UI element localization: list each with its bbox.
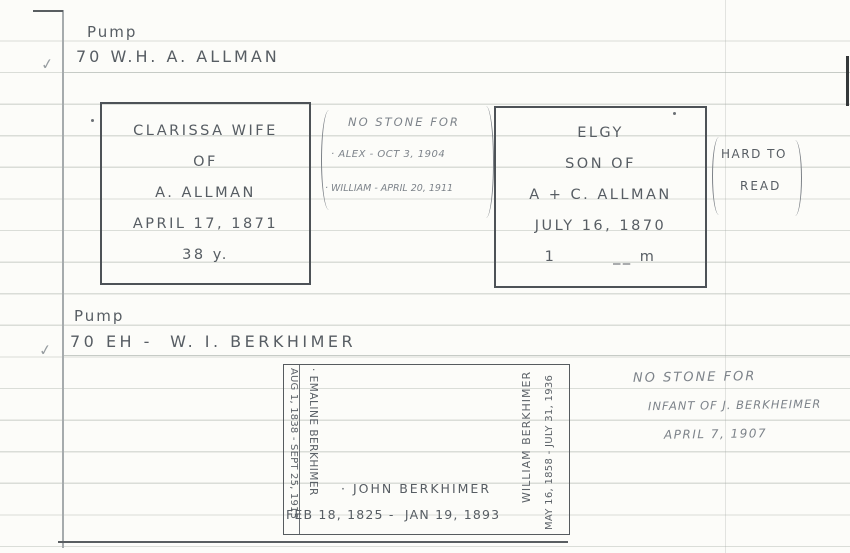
stone-side-text-william-name: WILLIAM BERKHIMER <box>521 371 532 503</box>
no-stone-note-1-line: NO STONE FOR <box>348 117 460 129</box>
stone-line: ELGY <box>577 118 624 149</box>
stone-line: 1 __ m <box>545 242 657 273</box>
pencil-dot <box>673 112 676 115</box>
stone-line: A + C. ALLMAN <box>529 180 671 211</box>
close-paren <box>478 106 494 218</box>
heading-allman: 70 W.H. A. ALLMAN <box>76 49 280 65</box>
stone-side-text-emaline-dates: AUG 1, 1838 - SEPT 25, 1915 <box>288 368 298 519</box>
stone-line: A. ALLMAN <box>155 178 256 209</box>
heading-pump-1: Pump <box>87 25 137 40</box>
paper-crease <box>725 0 726 553</box>
stone-bottom-text-john-dates: FEB 18, 1825 - JAN 19, 1893 <box>286 509 500 522</box>
margin-top-tick <box>33 10 63 12</box>
hard-to-read-line: HARD TO <box>721 148 787 160</box>
heading-pump-2: Pump <box>74 309 124 324</box>
checkmark-berkhimer: ✓ <box>38 342 55 359</box>
stone-line: OF <box>193 147 218 178</box>
stone-line: CLARISSA WIFE <box>133 116 278 147</box>
gravestone-sketch-clarissa: CLARISSA WIFE OF A. ALLMAN APRIL 17, 187… <box>100 102 311 285</box>
ruled-line-dark-2 <box>63 355 850 356</box>
stone-line: APRIL 17, 1871 <box>133 209 278 240</box>
checkmark-allman: ✓ <box>40 56 57 73</box>
no-stone-note-2-line: INFANT OF J. BERKHEIMER <box>648 399 821 413</box>
hard-to-read-line: READ <box>740 180 781 192</box>
bottom-sketch-line <box>58 541 568 543</box>
close-paren <box>788 140 802 216</box>
scanned-notebook-page: ✓ Pump 70 W.H. A. ALLMAN CLARISSA WIFE O… <box>0 0 850 553</box>
stone-bottom-text-john: · JOHN BERKHIMER <box>341 483 491 496</box>
no-stone-note-1-line: · ALEX - OCT 3, 1904 <box>331 150 445 160</box>
stone-side-text-emaline-name: · EMALINE BERKHIMER <box>308 368 319 496</box>
ruled-line-dark-1 <box>63 72 850 73</box>
stone-line: SON OF <box>565 149 636 180</box>
page-edge-mark <box>846 56 849 106</box>
open-paren <box>321 110 337 210</box>
no-stone-note-2-line: NO STONE FOR <box>633 370 756 385</box>
no-stone-note-1-line: · WILLIAM - APRIL 20, 1911 <box>325 184 453 194</box>
stone-line: 38 y. <box>182 240 229 271</box>
no-stone-note-2-line: APRIL 7, 1907 <box>664 427 767 440</box>
gravestone-sketch-elgy: ELGY SON OF A + C. ALLMAN JULY 16, 1870 … <box>494 106 707 288</box>
stone-line: JULY 16, 1870 <box>535 211 667 242</box>
heading-berkhimer: 70 EH - W. I. BERKHIMER <box>70 334 356 350</box>
margin-line <box>62 10 64 548</box>
stone-side-text-william-dates: MAY 16, 1858 - JULY 31, 1936 <box>545 375 555 530</box>
pencil-dot <box>91 119 94 122</box>
